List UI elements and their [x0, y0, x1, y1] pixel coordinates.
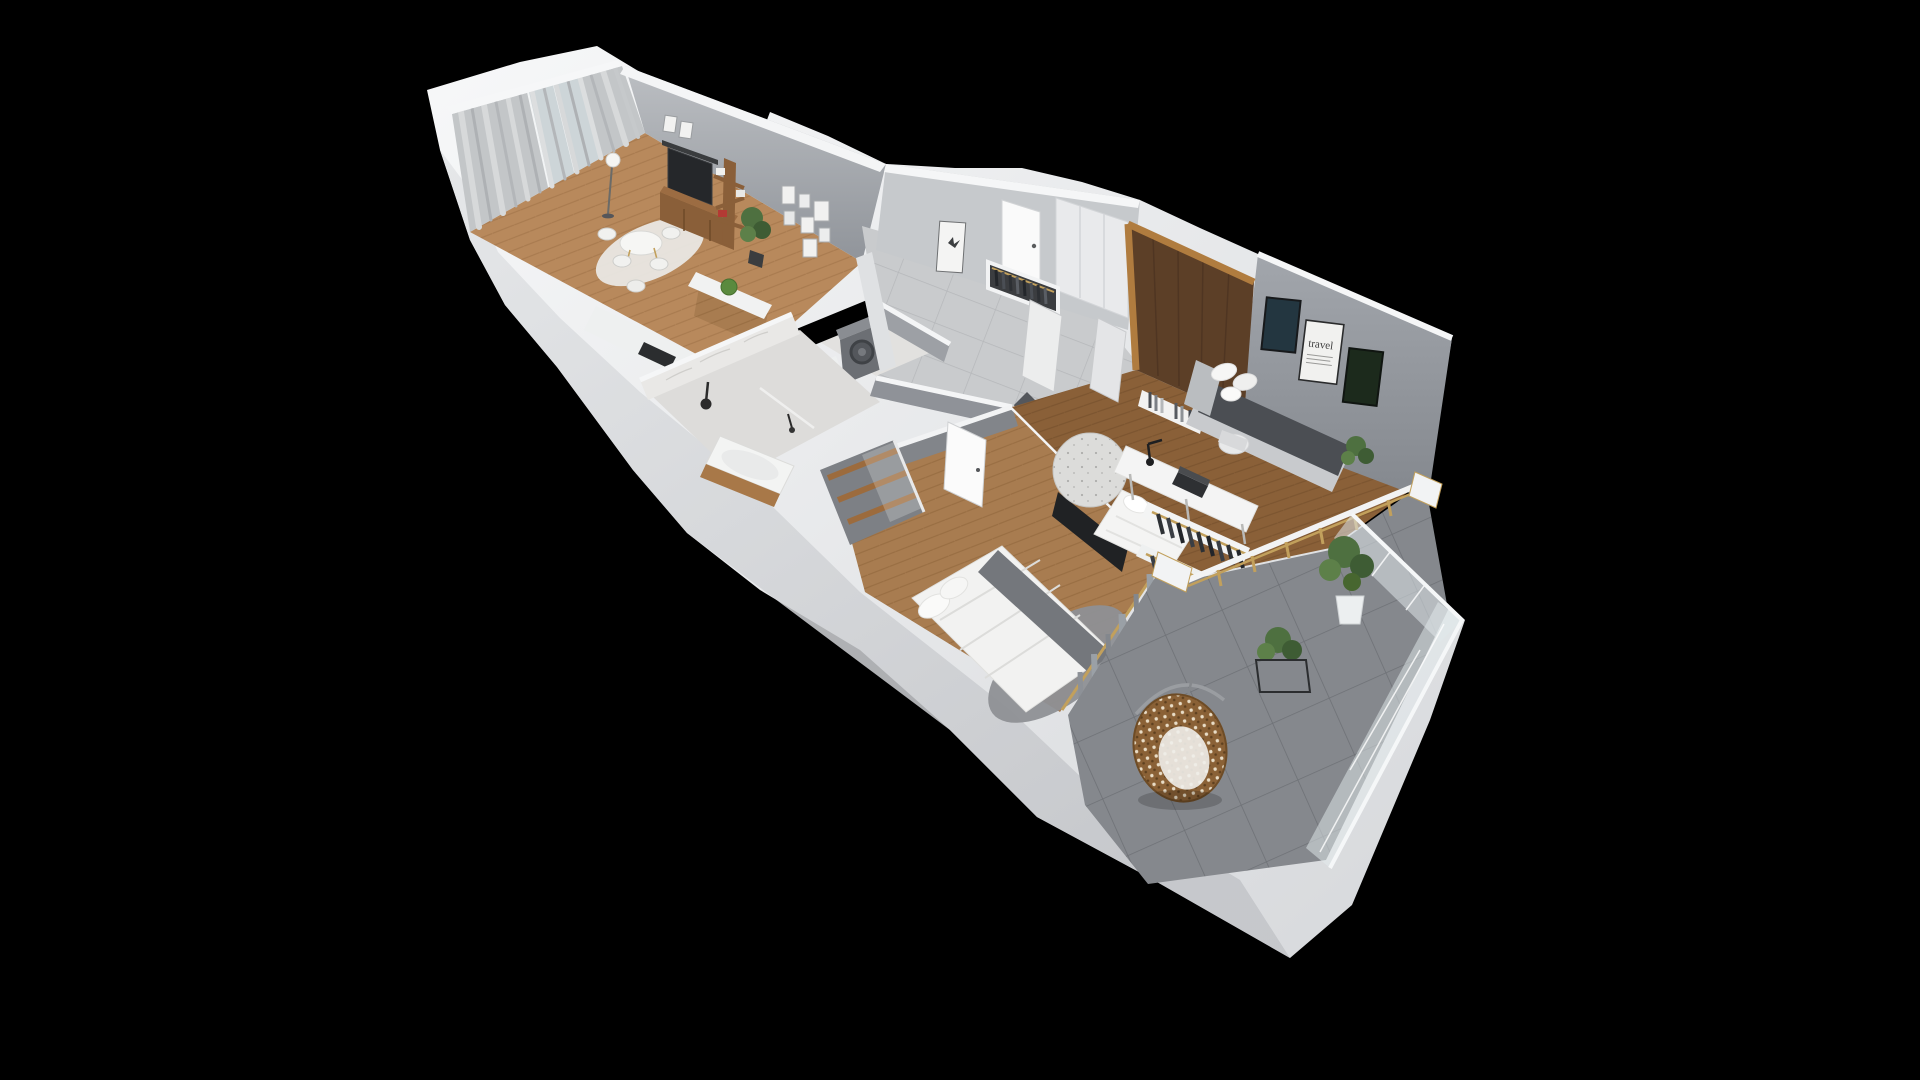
floorplan-3d-render: travel: [0, 0, 1920, 1080]
travel-poster: travel: [1299, 320, 1344, 384]
floorplan-canvas: travel: [0, 0, 1920, 1080]
butterfly-frame: [936, 221, 965, 273]
white-pot: [1336, 596, 1364, 624]
art-frame-dark: [1261, 297, 1300, 352]
art-frame-green: [1343, 348, 1383, 406]
moss-plant: [721, 279, 737, 295]
sofa-pillow: [1221, 387, 1241, 401]
